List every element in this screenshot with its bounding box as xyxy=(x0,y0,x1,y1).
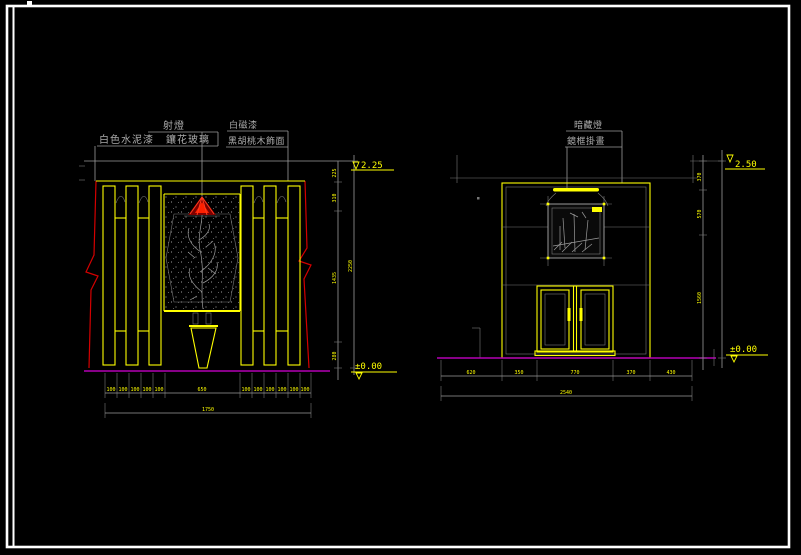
dim-text: 1560 xyxy=(697,292,703,304)
dim-text: 100 xyxy=(154,387,163,393)
dim-text: 350 xyxy=(514,370,523,376)
dim-text: 100 xyxy=(300,387,309,393)
dim-text: 100 xyxy=(142,387,151,393)
dim-text: 100 xyxy=(241,387,250,393)
label-white-enamel-paint: 白磁漆 xyxy=(229,119,258,131)
label-framed-picture: 鏡框掛畫 xyxy=(567,135,605,147)
dim-text: 1435 xyxy=(332,272,338,284)
dim-text: 100 xyxy=(118,387,127,393)
dim-total-text: 2540 xyxy=(560,390,572,396)
dim-text: 370 xyxy=(697,172,703,181)
dim-text: 100 xyxy=(130,387,139,393)
dim-text: 310 xyxy=(332,193,338,202)
dim-text: 100 xyxy=(265,387,274,393)
dim-text: 100 xyxy=(253,387,262,393)
dim-text: 570 xyxy=(697,209,703,218)
label-spotlight: 射燈 xyxy=(163,120,185,132)
dim-text: 430 xyxy=(666,370,675,376)
framed-picture xyxy=(540,196,612,266)
dim-text: 770 xyxy=(570,370,579,376)
door-handle-icon xyxy=(568,308,571,321)
sheet-background xyxy=(0,0,801,555)
dim-text: 100 xyxy=(106,387,115,393)
dim-text: 100 xyxy=(289,387,298,393)
dim-text: 650 xyxy=(197,387,206,393)
label-carved-glass: 鑲花玻璃 xyxy=(166,133,210,146)
level-bottom-text: ±0.00 xyxy=(355,362,382,372)
label-white-cement-paint: 白色水泥漆 xyxy=(99,133,154,146)
label-black-walnut-veneer: 黑胡桃木飾面 xyxy=(228,135,285,147)
door-handle-icon xyxy=(580,308,583,321)
level-bottom-text: ±0.00 xyxy=(730,345,757,355)
dim-text: 370 xyxy=(626,370,635,376)
cad-canvas: 射燈 白色水泥漆 鑲花玻璃 白磁漆 黑胡桃木飾面 xyxy=(0,0,801,555)
dim-text: 280 xyxy=(332,351,338,360)
dim-total-text: 1750 xyxy=(202,407,214,413)
dim-total-text: 2250 xyxy=(348,260,354,272)
picture-tag xyxy=(592,207,602,212)
label-concealed-light: 暗藏燈 xyxy=(574,119,603,131)
dim-text: 620 xyxy=(466,370,475,376)
dim-text: 100 xyxy=(277,387,286,393)
dim-text: 225 xyxy=(332,168,338,177)
